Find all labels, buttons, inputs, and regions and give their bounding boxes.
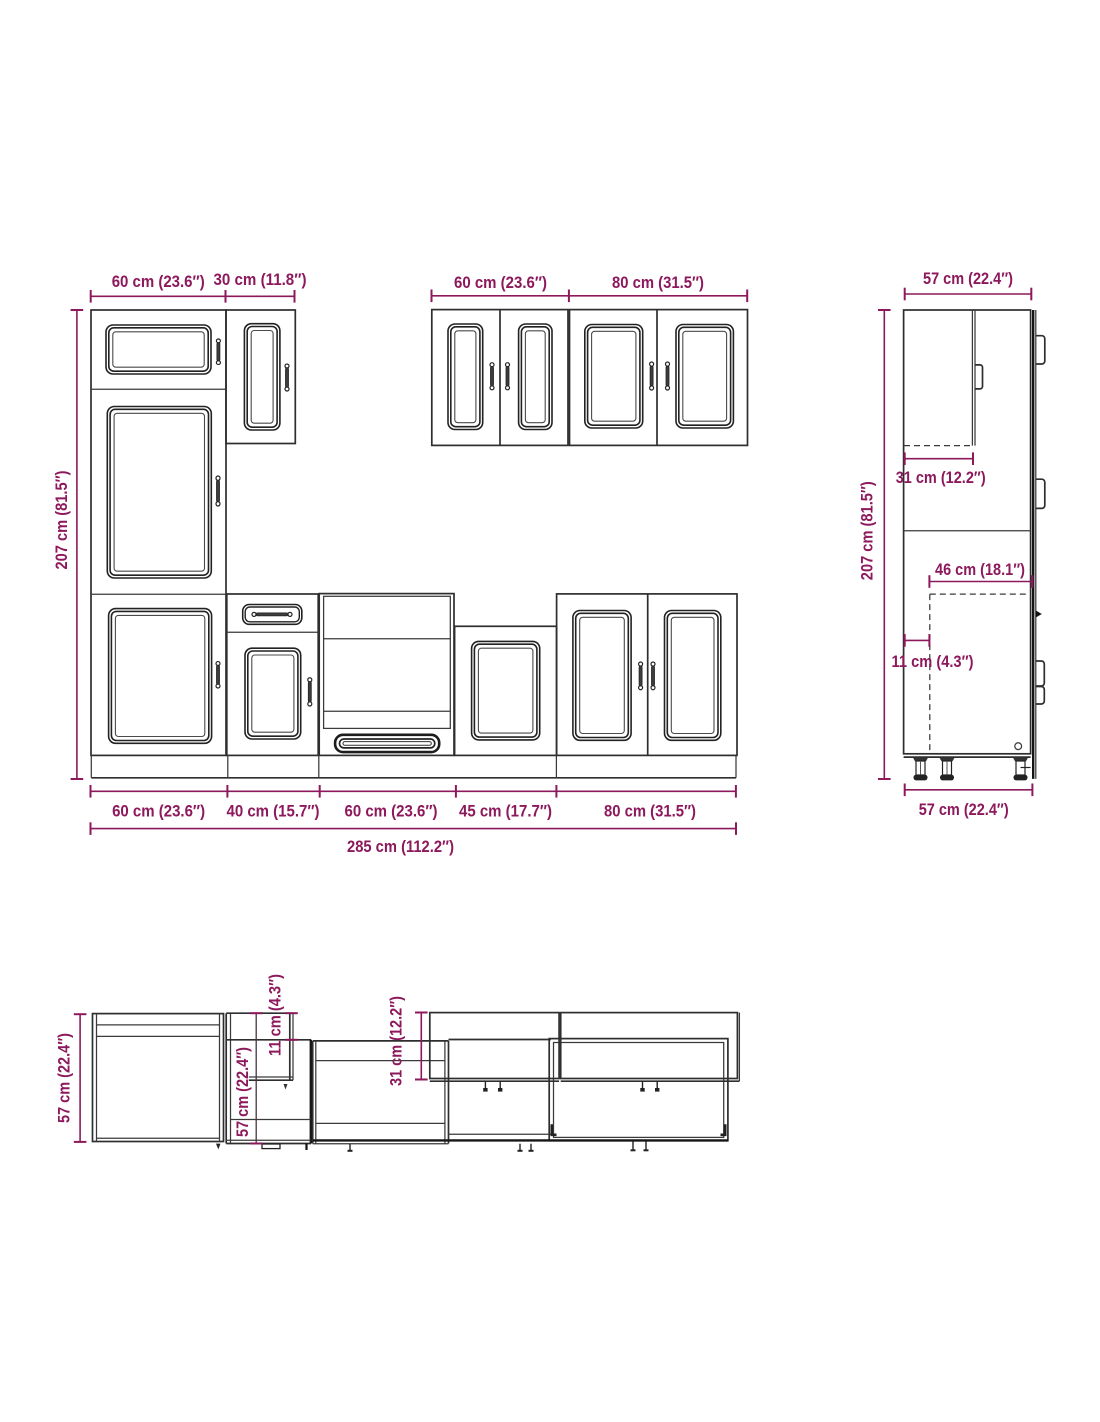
svg-text:57 cm (22.4″): 57 cm (22.4″) — [923, 269, 1013, 288]
svg-text:11 cm (4.3″): 11 cm (4.3″) — [892, 652, 974, 671]
svg-text:60 cm (23.6″): 60 cm (23.6″) — [112, 272, 205, 291]
svg-text:31 cm (12.2″): 31 cm (12.2″) — [387, 996, 406, 1086]
svg-text:31 cm (12.2″): 31 cm (12.2″) — [896, 468, 986, 487]
svg-text:60 cm (23.6″): 60 cm (23.6″) — [454, 273, 547, 292]
svg-text:45 cm (17.7″): 45 cm (17.7″) — [459, 802, 552, 821]
svg-text:11 cm (4.3″): 11 cm (4.3″) — [266, 974, 285, 1056]
svg-text:30 cm (11.8″): 30 cm (11.8″) — [214, 270, 307, 289]
svg-text:80 cm (31.5″): 80 cm (31.5″) — [612, 273, 704, 292]
svg-text:57 cm (22.4″): 57 cm (22.4″) — [233, 1047, 252, 1137]
svg-text:60 cm (23.6″): 60 cm (23.6″) — [345, 802, 438, 821]
svg-text:80 cm (31.5″): 80 cm (31.5″) — [604, 802, 696, 821]
svg-text:40 cm (15.7″): 40 cm (15.7″) — [227, 802, 320, 821]
svg-text:57 cm (22.4″): 57 cm (22.4″) — [919, 800, 1009, 819]
svg-text:285 cm (112.2″): 285 cm (112.2″) — [347, 837, 454, 856]
svg-text:60 cm (23.6″): 60 cm (23.6″) — [112, 802, 205, 821]
svg-text:46 cm (18.1″): 46 cm (18.1″) — [935, 560, 1025, 579]
svg-text:207 cm (81.5″): 207 cm (81.5″) — [52, 471, 71, 570]
svg-text:207 cm (81.5″): 207 cm (81.5″) — [858, 481, 877, 580]
svg-text:57 cm (22.4″): 57 cm (22.4″) — [55, 1033, 74, 1123]
